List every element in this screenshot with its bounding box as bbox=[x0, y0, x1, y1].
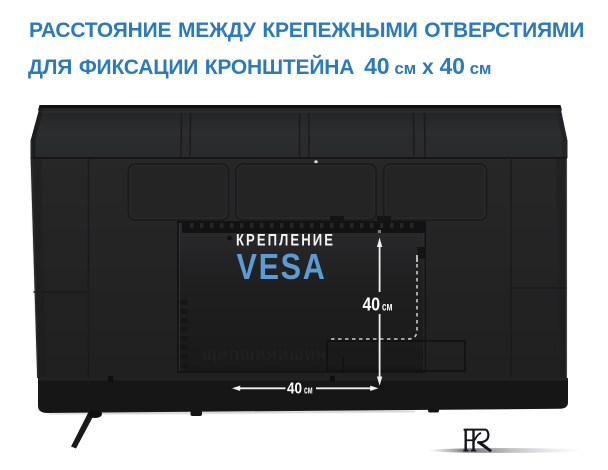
svg-text:40: 40 bbox=[287, 381, 302, 398]
svg-text:см: см bbox=[304, 385, 313, 397]
svg-text:VESA: VESA bbox=[237, 246, 327, 287]
svg-text:ЩИПШИНИШИН: ЩИПШИНИШИН bbox=[203, 347, 328, 363]
svg-text:40: 40 bbox=[363, 295, 381, 315]
svg-text:см: см bbox=[382, 300, 393, 314]
